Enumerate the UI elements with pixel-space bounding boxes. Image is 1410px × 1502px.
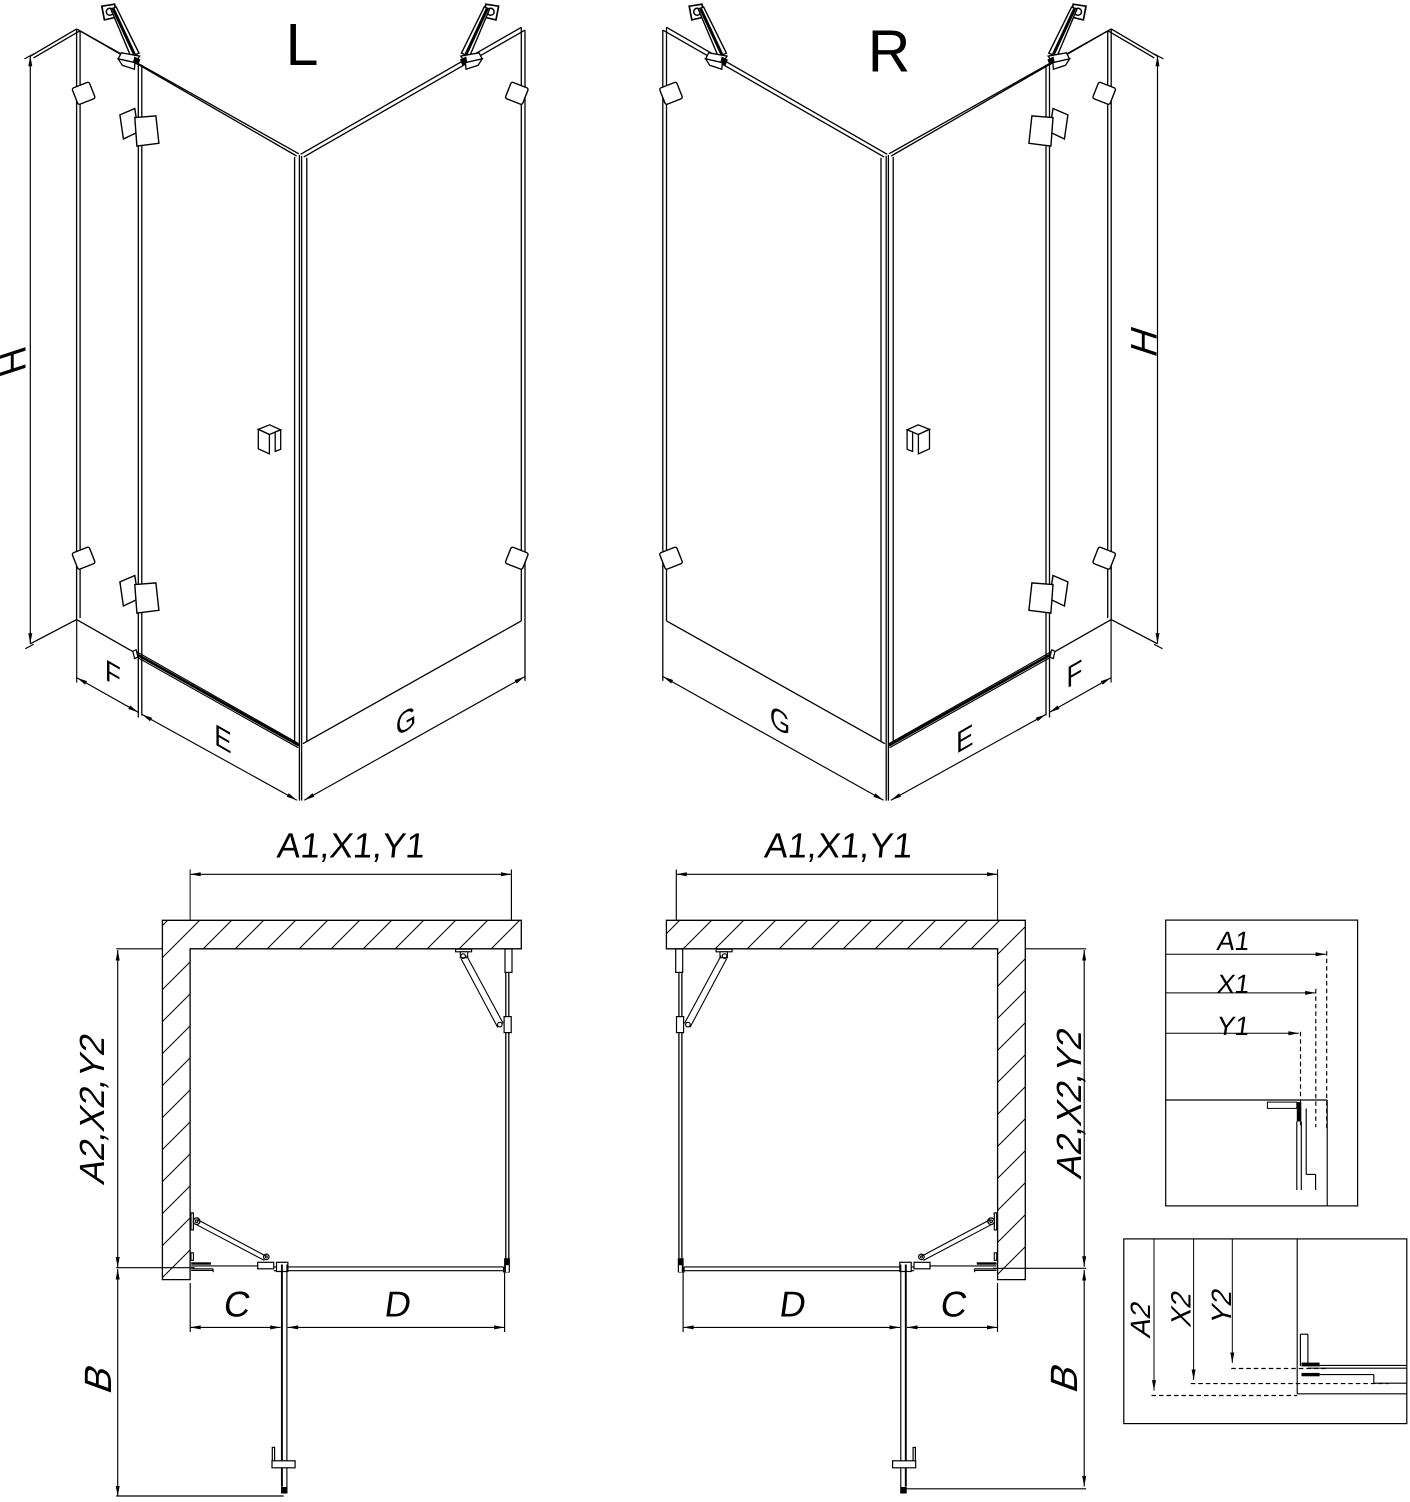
svg-text:Y1: Y1 xyxy=(1215,1011,1252,1041)
svg-text:A1,X1,Y1: A1,X1,Y1 xyxy=(763,827,915,866)
svg-text:X1: X1 xyxy=(1215,969,1252,999)
svg-text:A2,X2,Y2: A2,X2,Y2 xyxy=(1050,1023,1089,1181)
svg-text:L: L xyxy=(286,12,319,78)
svg-text:A2,X2,Y2: A2,X2,Y2 xyxy=(73,1029,112,1187)
svg-text:A1: A1 xyxy=(1215,926,1252,956)
svg-text:A1,X1,Y1: A1,X1,Y1 xyxy=(275,827,427,866)
svg-text:R: R xyxy=(868,19,911,85)
